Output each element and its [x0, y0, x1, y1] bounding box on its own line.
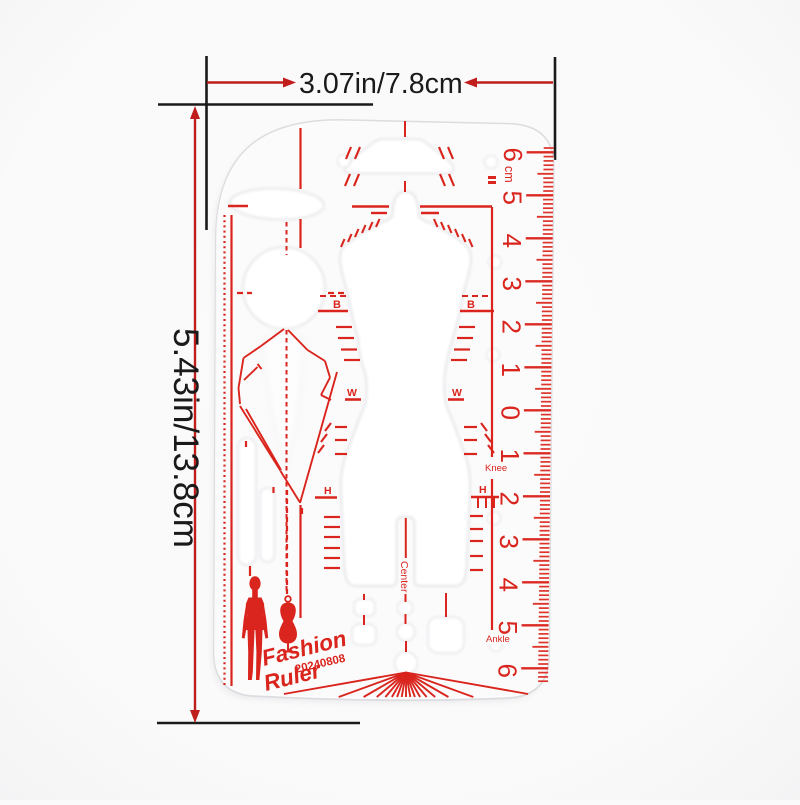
svg-text:W: W [452, 387, 462, 399]
svg-text:Ankle: Ankle [486, 634, 510, 645]
svg-text:B: B [467, 299, 475, 311]
svg-text:Knee: Knee [485, 463, 507, 474]
svg-text:W: W [347, 387, 357, 399]
svg-text:H: H [479, 484, 487, 496]
svg-text:H: H [324, 485, 332, 497]
svg-text:Center: Center [398, 561, 410, 593]
svg-text:4: 4 [494, 578, 524, 592]
svg-text:3: 3 [497, 277, 527, 291]
svg-text:6: 6 [498, 148, 528, 162]
svg-text:6: 6 [493, 664, 523, 678]
svg-text:3.07in/7.8cm: 3.07in/7.8cm [299, 68, 463, 100]
svg-text:4: 4 [497, 234, 527, 248]
svg-text:5: 5 [493, 621, 523, 635]
svg-text:1: 1 [495, 449, 525, 463]
svg-text:1: 1 [496, 363, 526, 377]
svg-text:2: 2 [496, 320, 526, 334]
svg-text:3: 3 [494, 535, 524, 549]
svg-text:2: 2 [495, 492, 525, 506]
svg-text:0: 0 [495, 406, 525, 420]
svg-text:5.43in/13.8cm: 5.43in/13.8cm [166, 328, 205, 548]
svg-text:B: B [333, 299, 341, 311]
svg-text:5: 5 [498, 191, 528, 205]
svg-text:cm: cm [502, 166, 516, 183]
